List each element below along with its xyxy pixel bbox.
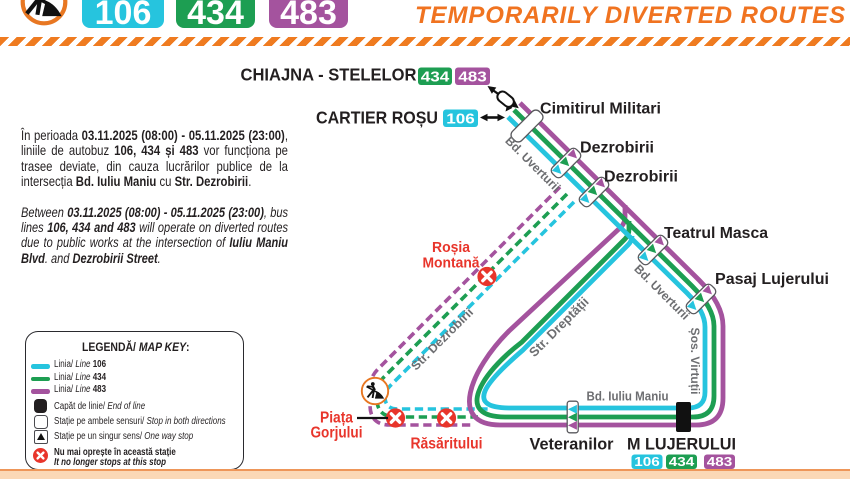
svg-text:Pasaj Lujerului: Pasaj Lujerului: [715, 271, 829, 288]
svg-text:CHIAJNA - STELELOR: CHIAJNA - STELELOR: [241, 65, 417, 85]
svg-text:Șos. Virtuții: Șos. Virtuții: [688, 328, 702, 395]
svg-text:Dezrobirii: Dezrobirii: [580, 140, 654, 157]
svg-text:434: 434: [669, 454, 696, 469]
svg-text:Bd. Iuliu Maniu: Bd. Iuliu Maniu: [587, 390, 669, 404]
svg-text:Str. Dezrobirii: Str. Dezrobirii: [408, 305, 476, 373]
svg-text:Răsăritului: Răsăritului: [411, 436, 483, 453]
svg-text:Gorjului: Gorjului: [311, 425, 363, 442]
svg-text:Dezrobirii: Dezrobirii: [604, 169, 678, 186]
svg-text:Teatrul Masca: Teatrul Masca: [664, 225, 768, 242]
svg-text:483: 483: [707, 454, 733, 469]
svg-text:Veteranilor: Veteranilor: [530, 436, 615, 454]
svg-text:Cimitirul Militari: Cimitirul Militari: [540, 101, 661, 118]
svg-text:106: 106: [634, 454, 660, 469]
svg-text:483: 483: [458, 70, 487, 86]
svg-text:M LUJERULUI: M LUJERULUI: [627, 436, 736, 454]
svg-text:Montană: Montană: [423, 255, 481, 272]
svg-text:Roșia: Roșia: [432, 239, 471, 256]
svg-text:434: 434: [421, 70, 450, 86]
svg-text:CARTIER ROȘU: CARTIER ROȘU: [316, 108, 438, 128]
svg-text:106: 106: [446, 112, 475, 128]
